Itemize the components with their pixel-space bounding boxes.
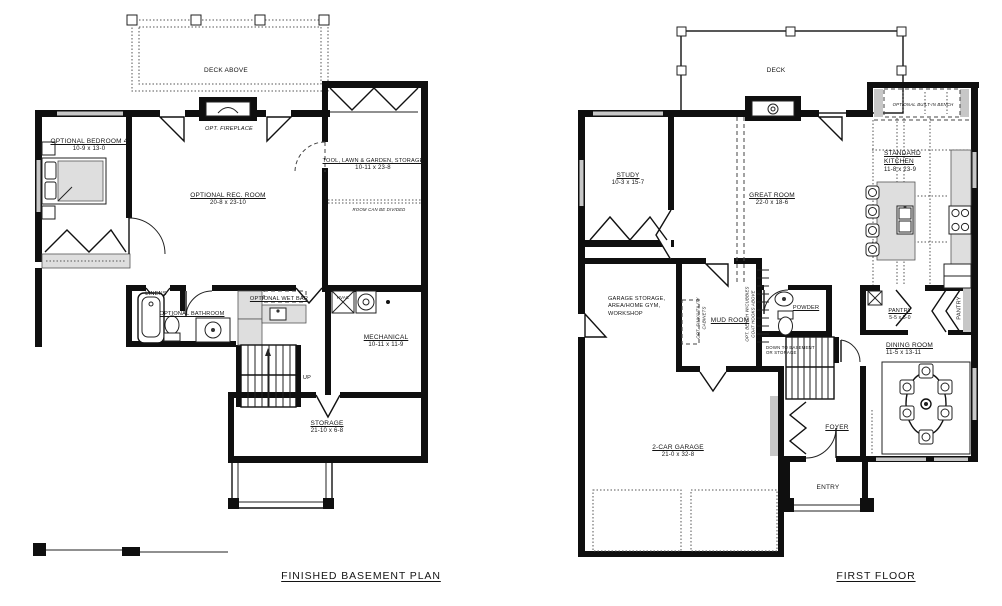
basement-plan-drawing — [33, 15, 428, 556]
bathroom-sink-icon — [196, 318, 230, 342]
label-room-divided: ROOM CAN BE DIVIDED — [353, 207, 406, 213]
stove-icon — [949, 206, 971, 234]
label-dining-room: DINING ROOM 11-5 x 13-11 — [886, 342, 933, 358]
toilet-icon — [164, 316, 180, 341]
label-powder: POWDER — [793, 305, 819, 312]
label-mechanical: MECHANICAL 10-11 x 11-9 — [364, 334, 409, 350]
label-rec-room: OPTIONAL REC. ROOM 20-8 x 23-10 — [190, 192, 266, 208]
label-optional-bathroom: OPTIONAL BATHROOM — [160, 311, 225, 318]
water-heater-icon — [356, 291, 390, 313]
powder-toilet-icon — [778, 311, 793, 335]
floor-plan-sheet: DECK ABOVE OPT. FIREPLACE OPTIONAL BEDRO… — [0, 0, 1002, 606]
label-deck-above: DECK ABOVE — [204, 67, 248, 75]
label-hvac: HVAC — [337, 295, 349, 301]
label-storage: STORAGE 21-10 x 6-8 — [310, 420, 343, 436]
label-opt-fireplace: OPT. FIREPLACE — [205, 126, 253, 133]
label-sink-utility-note: OPT. SINK/UTILITY CABINETS — [695, 297, 706, 338]
first-floor-title: FIRST FLOOR — [836, 570, 915, 584]
label-pantry: PANTRY 5-5 x 5-0 — [888, 308, 911, 322]
label-kitchen: STANDARD KITCHEN 11-8 x 23-9 — [884, 150, 934, 175]
fireplace-icon — [199, 97, 257, 121]
powder-sink-icon — [775, 292, 793, 306]
floor-plan-drawing — [0, 0, 1002, 606]
label-deck: DECK — [767, 67, 786, 75]
dining-table-icon — [900, 364, 952, 444]
label-foyer: FOYER — [825, 424, 848, 432]
built-in-bench-outline — [867, 82, 979, 120]
label-tool-room: TOOL, LAWN & GARDEN, STORAGE 10-11 x 23-… — [323, 158, 424, 173]
label-stairs-down-note: DOWN TO BASEMENT OR STORAGE — [766, 345, 815, 355]
deck-above-outline — [127, 15, 329, 91]
label-bench-cubbies-note: OPT. BENCH W/CUBBIES COAT HOOKS ABOVE — [744, 286, 755, 341]
label-bedroom4: OPTIONAL BEDROOM 4 10-9 x 13-0 — [50, 138, 127, 154]
garage-door-outlines — [593, 490, 777, 551]
label-2-car-garage: 2-CAR GARAGE 21-0 x 32-8 — [652, 444, 704, 460]
label-great-room: GREAT ROOM 22-0 x 18-6 — [749, 192, 795, 208]
label-pantry-2: PANTRY — [956, 296, 963, 319]
label-wet-bar: OPTIONAL WET BAR — [250, 296, 308, 303]
kitchen-island-icon — [866, 182, 915, 260]
label-stairs-up: UP — [303, 375, 311, 382]
label-garage-storage-note: GARAGE STORAGE, AREA/HOME GYM, WORKSHOP — [608, 296, 665, 318]
great-room-fireplace-icon — [745, 96, 801, 121]
label-study: STUDY 10-3 x 15-7 — [612, 172, 645, 188]
label-linens: LINENS — [145, 291, 166, 298]
basement-plan-title: FINISHED BASEMENT PLAN — [281, 570, 441, 584]
label-builtin-bench: OPTIONAL BUILT-IN BENCH — [893, 102, 954, 108]
label-entry: ENTRY — [817, 484, 840, 492]
